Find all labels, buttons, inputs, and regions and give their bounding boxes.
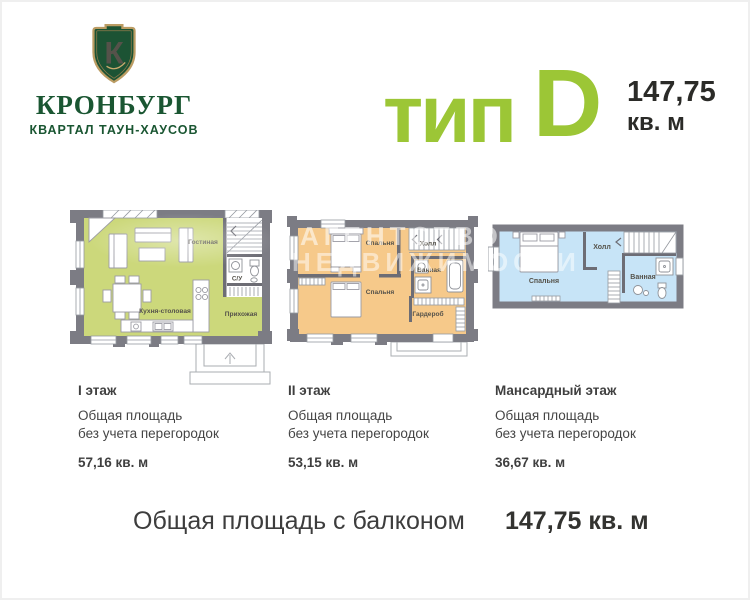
bed-icon [329,228,363,272]
room-label-hall: Холл [593,244,611,251]
logo-monogram: К [104,34,124,70]
footer-value: 147,75 кв. м [505,507,649,536]
room-label-bath: Ванная [630,274,655,281]
ladder-hatch [608,271,620,303]
logo-shield-icon: К [86,24,142,86]
radiator [532,296,560,301]
room-label-wardrobe: Гардероб [412,310,443,318]
floor-plan-1: Гостиная С/У Кухня-столовая Прихожая [65,210,290,395]
logo: К КРОНБУРГ КВАРТАЛ ТАУН-ХАУСОВ [22,24,206,137]
room-label-living: Гостиная [188,239,218,246]
footer-label: Общая площадь с балконом [133,507,465,536]
logo-name: КРОНБУРГ [22,92,206,119]
wardrobe-hatch [456,307,465,331]
floor-name: Мансардный этаж [495,383,690,398]
shelf-hatch [414,298,464,305]
bed-icon [331,282,361,317]
bed-icon [513,232,565,272]
floor-info-1: I этаж Общая площадь без учета перегород… [78,383,273,470]
total-area-value: 147,75 [627,78,716,107]
floor-note: Общая площадь без учета перегородок [495,407,690,443]
dresser-hatch [299,278,325,285]
floor-note: Общая площадь без учета перегородок [288,407,483,443]
floor-area: 36,67 кв. м [495,455,690,470]
total-area-unit: кв. м [627,111,716,135]
total-area: 147,75 кв. м [627,78,716,135]
floor-area: 53,15 кв. м [288,455,483,470]
type-word: тип [383,74,514,156]
floor-plan-2: Спальня Холл Ванная Спальня Гардероб [287,212,482,362]
room-label-bedroom2: Спальня [366,289,395,296]
room-label-bath: Ванная [417,267,441,274]
floor-plan-3: Спальня Холл Ванная [488,211,693,311]
entrance-porch [190,344,270,384]
unit-type-title: тип D 147,75 кв. м [383,56,733,166]
room-label-hall: Прихожая [225,311,258,318]
floor-area: 57,16 кв. м [78,455,273,470]
floor-name: II этаж [288,383,483,398]
floor-note: Общая площадь без учета перегородок [78,407,273,443]
room-label-kitchen: Кухня-столовая [139,308,191,315]
room-label-bedroom: Спальня [529,278,559,285]
floor-info-2: II этаж Общая площадь без учета перегоро… [288,383,483,470]
floor-name: I этаж [78,383,273,398]
type-letter: D [533,56,602,152]
flyer-page: К КРОНБУРГ КВАРТАЛ ТАУН-ХАУСОВ тип D 147… [0,0,750,600]
balcony [391,342,467,356]
logo-tagline: КВАРТАЛ ТАУН-ХАУСОВ [22,124,206,137]
room-label-bedroom1: Спальня [366,240,395,247]
room-label-hall: Холл [420,241,437,248]
floor-info-3: Мансардный этаж Общая площадь без учета … [495,383,690,470]
room-label-wc: С/У [232,276,243,283]
stairs-icon [409,228,465,253]
stairs-icon [616,232,676,253]
